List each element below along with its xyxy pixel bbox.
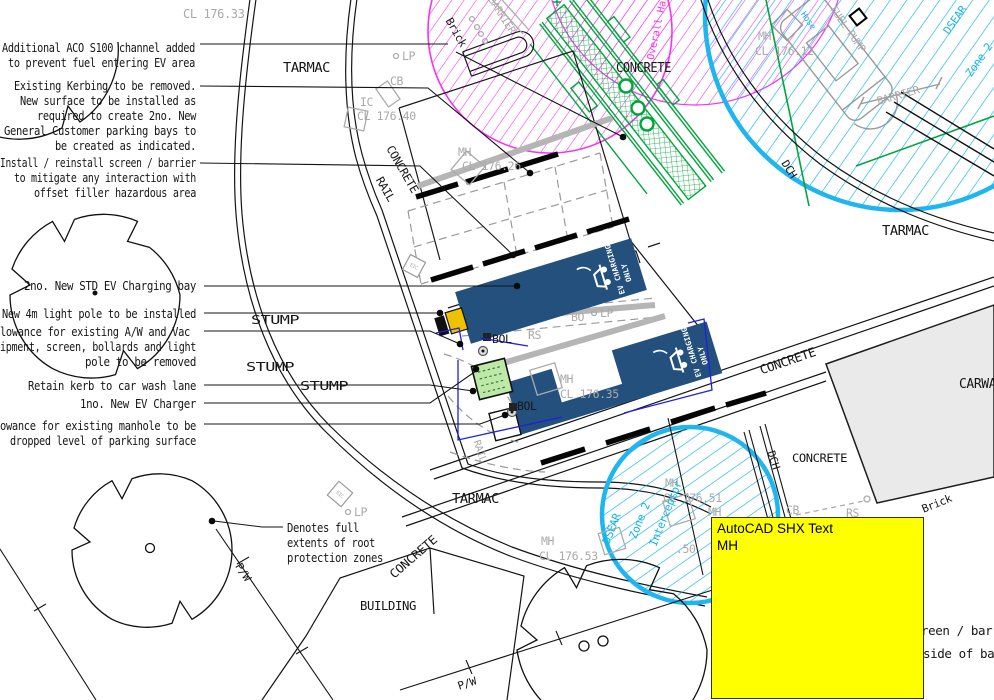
label-tarmac-right: TARMAC bbox=[882, 224, 929, 239]
survey-lp-mid: LP bbox=[600, 306, 614, 320]
annotation-screen-line2: to mitigate any interaction with bbox=[14, 170, 196, 185]
annotation-root-line1: Denotes full bbox=[287, 520, 359, 535]
label-tarmac-bottom: TARMAC bbox=[452, 492, 499, 507]
label-stump-3: STUMP bbox=[300, 379, 348, 393]
annotation-aco-line2: to prevent fuel entering EV area bbox=[8, 55, 195, 70]
annotation-hidden-line1: reen / barrie bbox=[921, 623, 994, 638]
label-carwash: CARWA bbox=[959, 377, 994, 392]
annotation-manhole-line2: dropped level of parking surface bbox=[10, 433, 196, 448]
annotation-retain-kerb: Retain kerb to car wash lane bbox=[28, 378, 196, 393]
label-rail-gray: RAIL bbox=[471, 439, 489, 464]
annotation-root-line2: extents of root bbox=[287, 535, 375, 550]
tooltip-value: MH bbox=[717, 537, 918, 554]
survey-bo: BO bbox=[571, 310, 585, 324]
label-concrete-road: CONCRETE bbox=[758, 344, 818, 377]
eic-block-1: EIC bbox=[403, 255, 426, 278]
annotation-kerbing-line1: Existing Kerbing to be removed. bbox=[14, 78, 196, 93]
annotation-vac-line3: pole to be removed bbox=[85, 354, 196, 369]
annotation-vac-line1: lowance for existing A/W and Vac bbox=[0, 324, 190, 339]
label-stump-2: STUMP bbox=[246, 360, 294, 374]
survey-cb-top: CB bbox=[390, 74, 404, 88]
annotation-hidden-line2: side of bay bbox=[923, 646, 994, 661]
label-dch-bottom: DCH bbox=[764, 449, 782, 471]
ev-charger-cabinet bbox=[471, 358, 512, 399]
survey-cl-176-35: CL 176.35 bbox=[560, 387, 619, 401]
survey-frag-50: .50 bbox=[676, 542, 696, 556]
shx-text-tooltip: AutoCAD SHX Text MH bbox=[711, 517, 924, 699]
annotation-kerbing-line2: New surface to be installed as bbox=[20, 93, 196, 108]
annotation-kerbing-line4: General Customer parking bays to bbox=[4, 123, 196, 138]
survey-cb-bottom: CB bbox=[786, 503, 800, 517]
tooltip-title: AutoCAD SHX Text bbox=[717, 520, 918, 537]
eic-block-2: EIC bbox=[327, 481, 352, 506]
label-rail: RAIL bbox=[373, 174, 398, 204]
survey-cl-176-26: CL 176.26 bbox=[462, 159, 521, 173]
annotation-kerbing-line3: required to create 2no. New bbox=[37, 108, 197, 123]
annotation-ev-bay: 2no. New STD EV Charging bay bbox=[24, 278, 197, 293]
annotation-screen-line1: Install / reinstall screen / barrier bbox=[0, 155, 197, 170]
survey-cl-176-40: CL 176.40 bbox=[357, 109, 416, 123]
annotation-root-line3: protection zones bbox=[287, 550, 383, 565]
label-stump-1: STUMP bbox=[251, 313, 299, 327]
label-pw-2: P/W bbox=[456, 674, 479, 692]
annotation-ev-charger: 1no. New EV Charger bbox=[80, 396, 197, 411]
annotation-screen-line3: offset filler hazardous area bbox=[34, 185, 196, 200]
survey-lp-bottom: LP bbox=[354, 505, 368, 519]
label-concrete-mid: CONCRETE bbox=[792, 451, 847, 465]
survey-mh-53: MH bbox=[541, 534, 555, 548]
label-brick-bottom: Brick bbox=[920, 492, 954, 516]
annotation-manhole-line1: owance for existing manhole to be bbox=[0, 418, 196, 433]
survey-lp-top: LP bbox=[402, 49, 416, 63]
tree-root-zone-2 bbox=[72, 474, 232, 628]
bol-square-2 bbox=[509, 403, 517, 411]
annotation-vac-line2: ipment, screen, bollards and light bbox=[0, 339, 196, 354]
cad-viewport[interactable]: EV CHARGING ONLY EV CHARGING ONLY bbox=[0, 0, 994, 700]
annotation-light-pole: New 4m light pole to be installed bbox=[2, 306, 196, 321]
survey-mh-12: MH bbox=[758, 29, 772, 43]
label-bol-1: BOL bbox=[492, 332, 512, 346]
label-concrete-pumps: CONCRETE bbox=[616, 61, 671, 76]
survey-cl-176-12: CL 176.12 bbox=[755, 44, 814, 58]
label-building: BUILDING bbox=[360, 598, 416, 613]
survey-cl-176-53: CL 176.53 bbox=[539, 549, 598, 563]
leader-dots bbox=[209, 134, 627, 525]
survey-mh-26: MH bbox=[458, 145, 472, 159]
label-bol-2: BOL bbox=[517, 399, 537, 413]
label-tarmac-top: TARMAC bbox=[283, 61, 330, 76]
annotation-aco-line1: Additional ACO S100 channel added bbox=[2, 40, 195, 55]
survey-mh-35: MH bbox=[560, 372, 574, 386]
annotation-kerbing-line5: be created as indicated. bbox=[55, 138, 196, 153]
survey-ic: IC bbox=[360, 95, 374, 109]
survey-cl-176-33: CL 176.33 bbox=[183, 7, 245, 21]
survey-rs-mid: RS bbox=[528, 328, 542, 342]
